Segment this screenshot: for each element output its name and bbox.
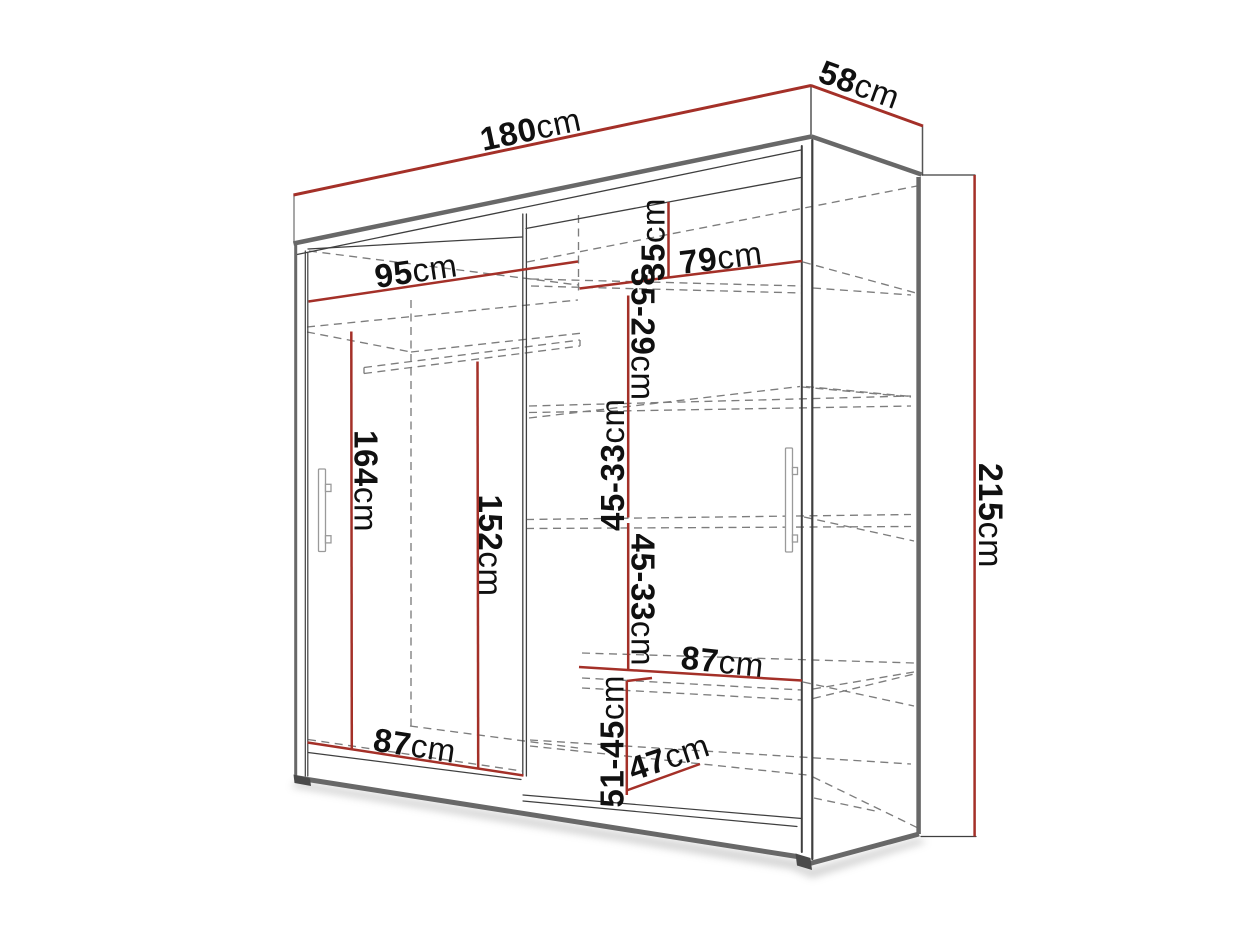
svg-text:152cm: 152cm [472, 495, 509, 597]
svg-text:45-33cm: 45-33cm [625, 534, 662, 667]
svg-text:45-33cm: 45-33cm [594, 398, 631, 531]
svg-text:35-29cm: 35-29cm [625, 268, 662, 401]
svg-text:51-45cm: 51-45cm [594, 675, 631, 808]
svg-text:164cm: 164cm [348, 430, 385, 532]
svg-text:215cm: 215cm [971, 463, 1009, 568]
